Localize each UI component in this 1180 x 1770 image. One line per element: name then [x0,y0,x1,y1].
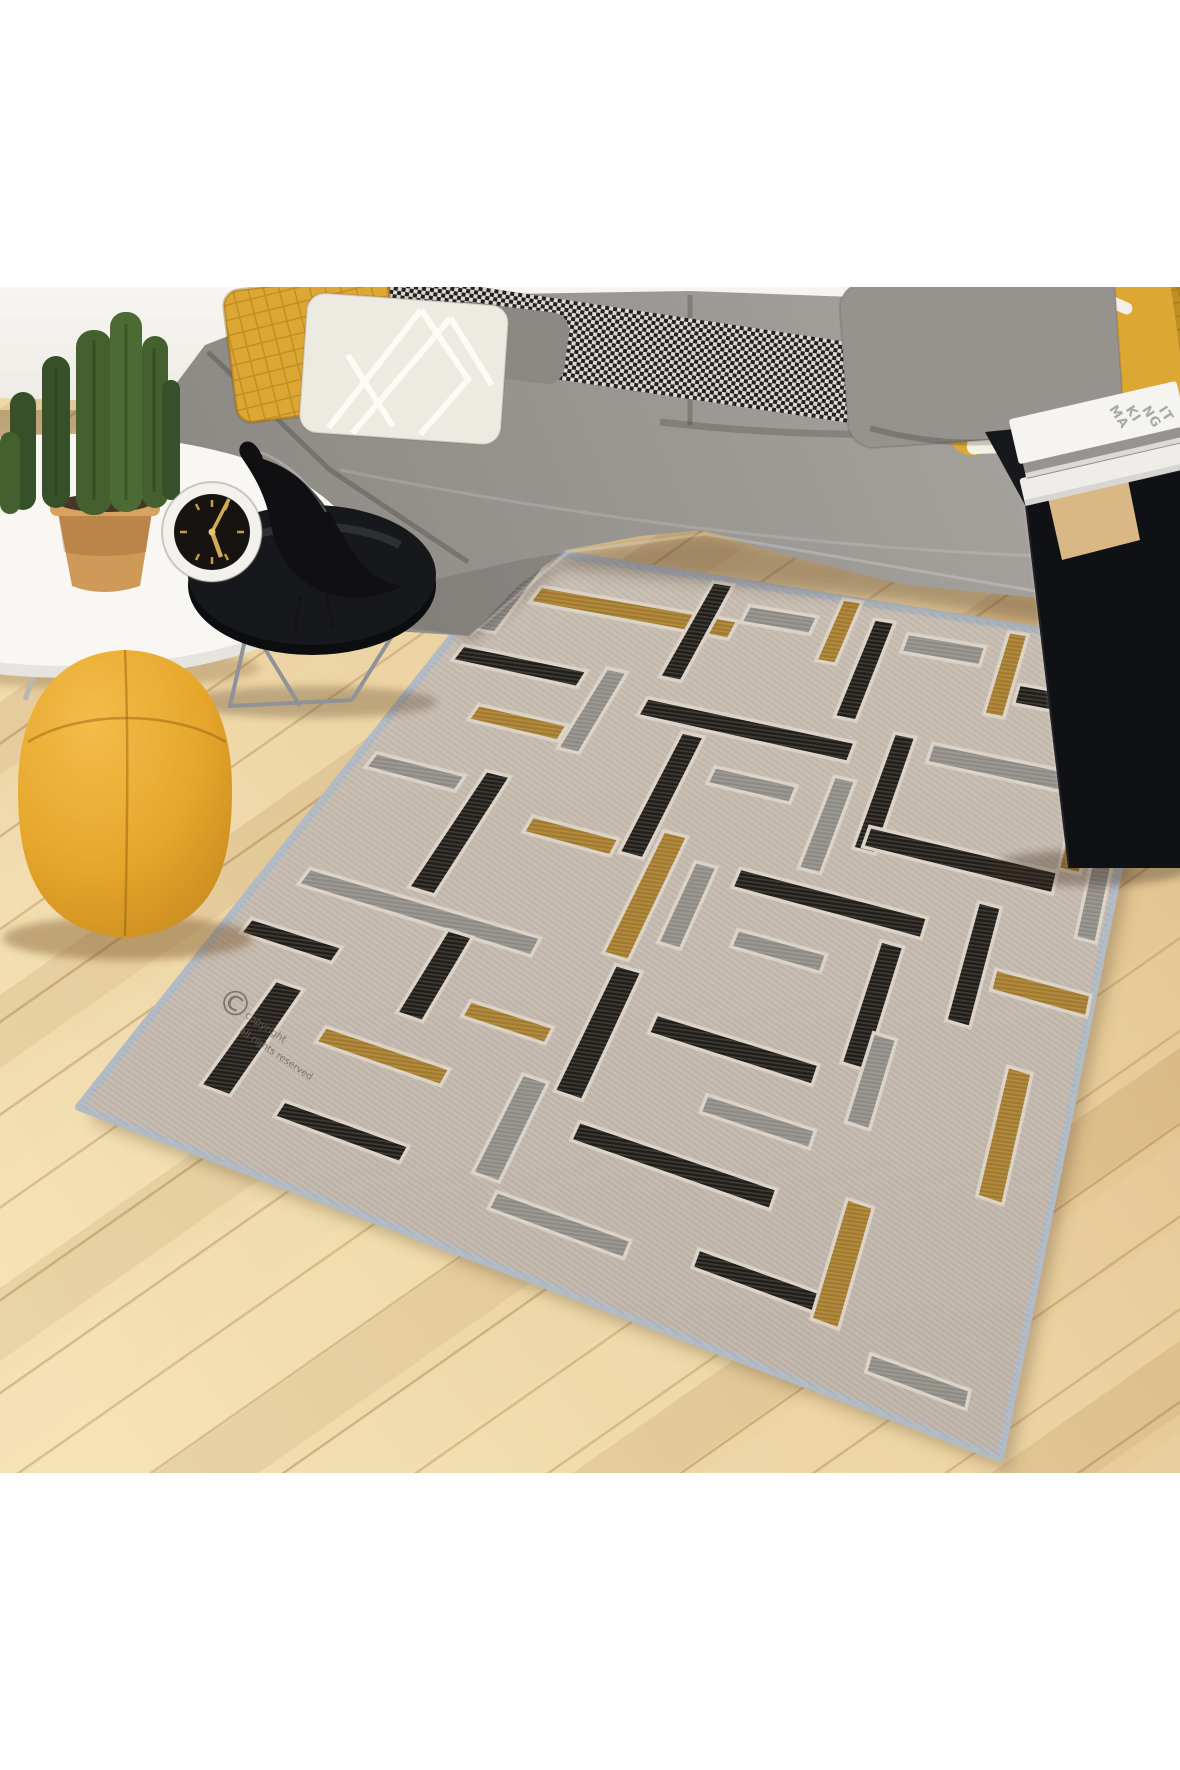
product-photo[interactable]: ©copyrightall rights reserved [0,0,1180,1770]
alarm-clock [162,482,262,582]
pillow-white-geometric [298,292,509,446]
living-room-scene: ©copyrightall rights reserved [0,0,1180,1770]
